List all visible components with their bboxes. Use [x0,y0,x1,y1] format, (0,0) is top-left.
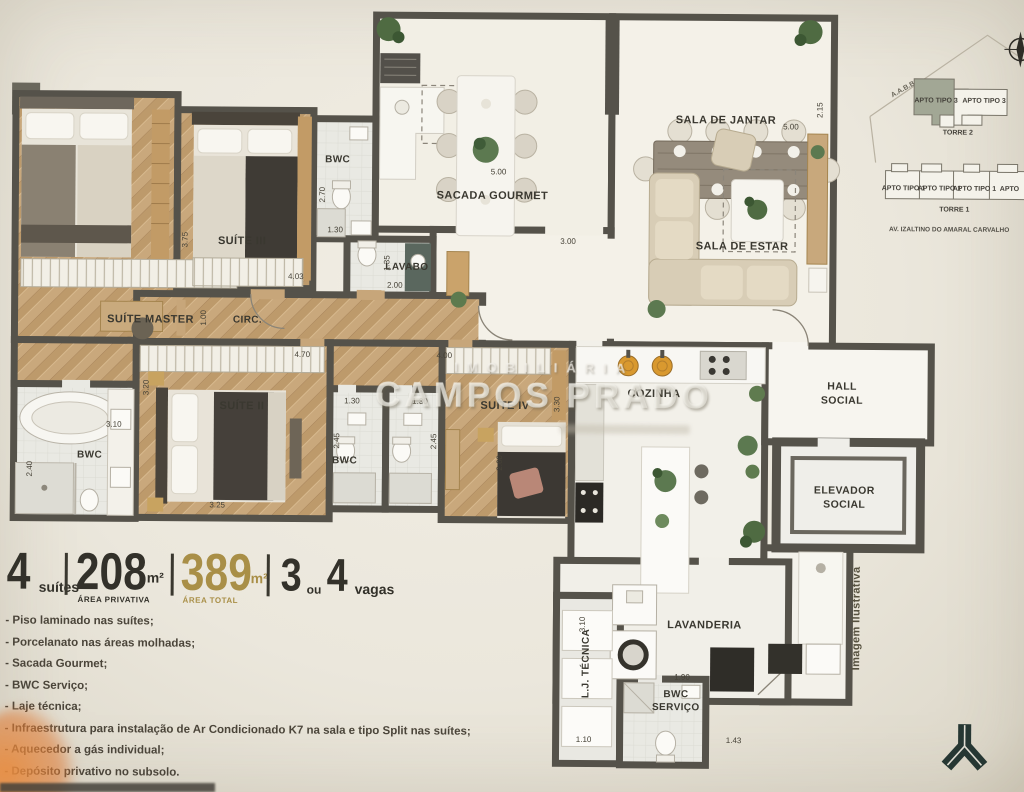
spec-vagas-conj: ou [307,583,322,597]
keyplan-graphic [869,30,1024,199]
watermark-subline [560,424,690,434]
room-label-suite-ii: SUÍTE II [219,400,264,412]
spec-total-unit: m² [251,570,268,586]
dim-label: 1.10 [576,735,592,744]
dim-label: 1.00 [199,310,208,326]
keyplan-unit-label: APTO TIPO 1 [953,186,996,193]
keyplan-torre2-caption: TORRE 2 [943,130,973,137]
dim-label: 5.00 [491,167,507,176]
keyplan-street-label: AV. IZALTINO DO AMARAL CARVALHO [889,226,1009,234]
watermark-line2: CAMPOS PRADO [370,375,718,417]
dim-label: 2.40 [25,461,34,477]
dim-label: 1.35 [382,255,391,271]
dim-label: 3.20 [141,380,150,396]
watermark-line1: IMOBILIÁRIA [384,359,704,376]
dim-label: 3.00 [560,237,576,246]
room-label-lavabo: LAVABO [385,262,428,273]
dim-label: 2.15 [815,102,824,118]
dim-label: 2.45 [429,434,438,450]
feature-item: - Sacada Gourmet; [5,653,565,678]
spec-privativa-label: ÁREA PRIVATIVA [78,595,151,605]
dim-label: 4.70 [294,350,310,359]
keyplan-unit-label: APTO [1000,186,1019,193]
brand-logo-icon [946,724,982,766]
spec-divider [65,553,68,595]
room-label-jantar: SALA DE JANTAR [676,114,776,127]
dim-label: 2.45 [332,433,341,449]
room-label-lj-tecnica: L.J. TÉCNICA [580,629,591,698]
features-list: - Piso laminado nas suítes; - Porcelanat… [4,610,565,786]
dim-label: 3.75 [181,232,190,248]
room-label-estar: SALA DE ESTAR [696,240,789,253]
dim-label: 3.25 [209,500,225,509]
dim-label: 3.10 [578,617,587,633]
spec-vagas-label: vagas [355,581,395,597]
spec-privativa-value: 208 [76,546,148,598]
photo-edge-band [0,783,215,792]
room-label-bwc-master: BWC [77,449,102,460]
spec-total-label: ÁREA TOTAL [183,596,239,605]
spec-suites-value: 4 [7,545,31,597]
spec-privativa-unit: m² [147,569,164,585]
spec-divider [171,554,174,596]
dim-label: 4.03 [288,272,304,281]
dim-label: 1.90 [674,673,690,682]
dim-label: 2.00 [387,281,403,290]
dim-label: 1.30 [327,225,343,234]
room-label-circ: CIRC. [233,315,262,326]
room-label-suite-iii: SUÍTE III [218,235,266,247]
room-label-bwc-suite3: BWC [325,154,350,165]
illustrative-note: Imagem Ilustrativa [850,566,863,670]
spec-total-value: 389 [181,547,253,599]
brochure-page: SUÍTE MASTER SUÍTE III SUÍTE II SUÍTE IV… [0,0,1024,792]
dim-label: 1.43 [726,736,742,745]
room-label-suite-master: SUÍTE MASTER [107,313,194,326]
spec-suites-label: suítes [39,579,80,595]
keyplan-torre1-caption: TORRE 1 [939,206,969,213]
room-label-bwc-suites: BWC [332,455,357,466]
room-label-sacada: SACADA GOURMET [437,189,549,202]
room-label-elevador: ELEVADOR SOCIAL [811,484,877,512]
room-label-hall: HALL SOCIAL [817,380,867,408]
keyplan-unit-label: APTO TIPO 3 [962,98,1005,105]
spec-vagas-value1: 3 [281,551,302,597]
spec-divider [267,554,270,596]
dim-label: 1.30 [344,396,360,405]
dim-label: 5.00 [783,122,799,131]
room-label-lavanderia: LAVANDERIA [667,619,742,632]
compass-icon [1004,31,1024,67]
keyplan-unit-label: APTO TIPO 3 [914,97,957,104]
dim-label: 2.70 [318,187,327,203]
dim-label: 3.10 [106,420,122,429]
dim-label: 2.60 [495,455,504,471]
room-label-bwc-servico: BWC SERVIÇO [648,688,704,714]
spec-vagas-value2: 4 [327,552,348,598]
